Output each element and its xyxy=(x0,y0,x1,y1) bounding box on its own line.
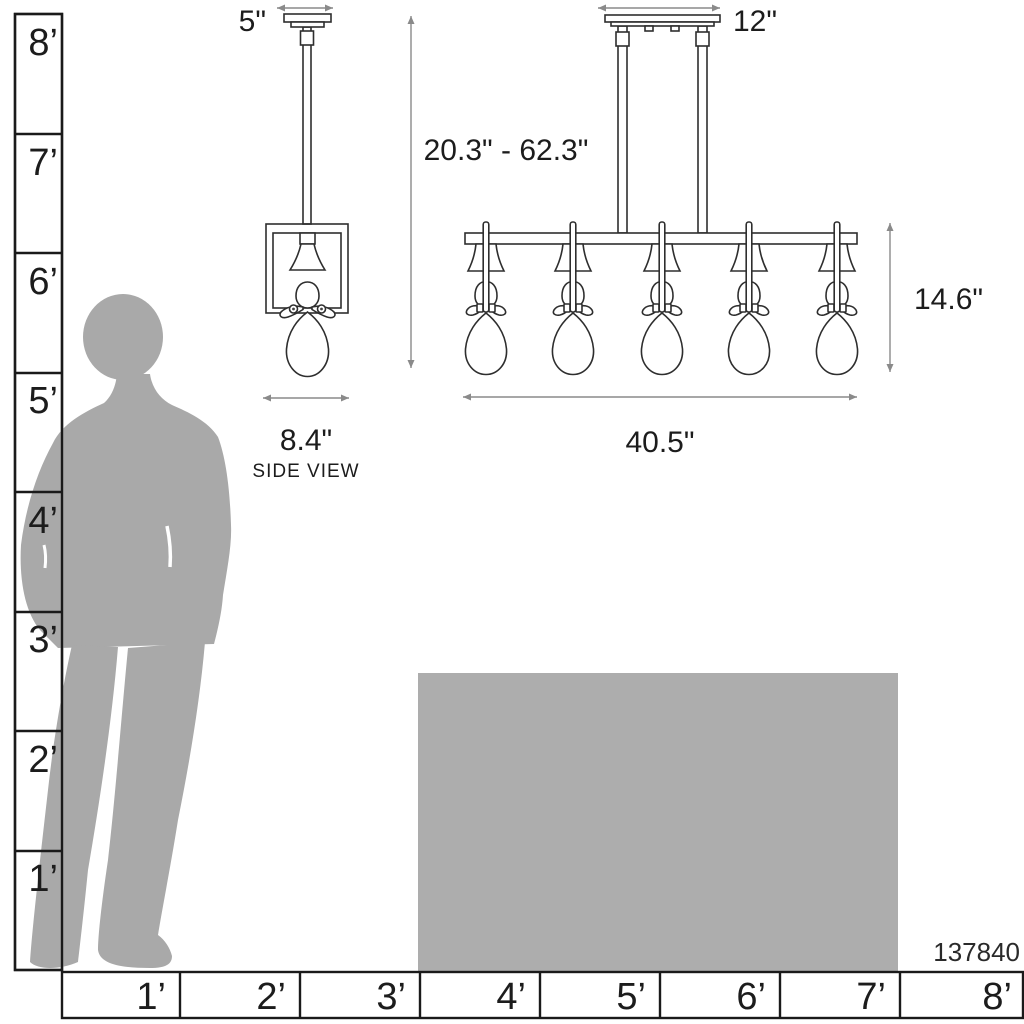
width-ruler-label: 4’ xyxy=(496,976,526,1018)
width-ruler-label: 8’ xyxy=(982,976,1012,1018)
silhouette-front-leg xyxy=(98,642,205,968)
height-ruler-label: 2’ xyxy=(28,739,58,781)
front-canopy-base xyxy=(611,22,714,26)
front-width-label: 40.5" xyxy=(625,426,694,459)
height-ruler-label: 7’ xyxy=(28,142,58,184)
island-table-block xyxy=(418,673,898,972)
width-ruler-label: 7’ xyxy=(856,976,886,1018)
pendant-light-5 xyxy=(816,222,857,375)
side-bell-shade xyxy=(290,244,325,270)
side-knob-right-dot xyxy=(320,308,323,311)
height-ruler-label: 6’ xyxy=(28,261,58,303)
width-ruler-label: 2’ xyxy=(256,976,286,1018)
side-knob-left-dot xyxy=(292,308,295,311)
side-canopy-base xyxy=(291,22,324,27)
pendant-light-1 xyxy=(465,222,506,375)
silhouette-pocket-left xyxy=(44,545,46,568)
front-downrod-right xyxy=(698,26,707,233)
product-code: 137840 xyxy=(933,937,1020,967)
width-ruler: 1’ 2’ 3’ 4’ 5’ 6’ 7’ 8’ xyxy=(62,972,1023,1018)
silhouette-head xyxy=(83,294,163,380)
side-downrod xyxy=(303,27,311,224)
front-view: 12" 20.3" - 62.3" 14.6" 40.5" xyxy=(411,5,983,459)
front-canopy-tab-left xyxy=(645,26,653,31)
pendant-light-3 xyxy=(641,222,682,375)
width-ruler-label: 3’ xyxy=(376,976,406,1018)
front-canopy xyxy=(605,15,720,22)
height-ruler-label: 3’ xyxy=(28,619,58,661)
height-ruler-label: 1’ xyxy=(28,858,58,900)
front-canopy-width-label: 12" xyxy=(733,5,777,38)
width-ruler-label: 5’ xyxy=(616,976,646,1018)
width-ruler-label: 6’ xyxy=(736,976,766,1018)
front-canopy-tab-right xyxy=(671,26,679,31)
front-rod-coupling-left xyxy=(616,32,629,46)
side-bulb xyxy=(296,282,319,308)
front-body-height-label: 14.6" xyxy=(914,283,983,316)
side-width-label: 8.4" xyxy=(280,424,332,457)
pendant-light-4 xyxy=(728,222,769,375)
height-ruler-label: 4’ xyxy=(28,500,58,542)
dimension-diagram-page: 8’ 7’ 6’ 5’ 4’ 3’ 2’ 1’ 1’ 2’ 3’ 4’ 5’ 6… xyxy=(0,0,1024,1024)
width-ruler-label: 1’ xyxy=(136,976,166,1018)
dimension-diagram: 8’ 7’ 6’ 5’ 4’ 3’ 2’ 1’ 1’ 2’ 3’ 4’ 5’ 6… xyxy=(0,0,1024,1024)
side-view: 5" 8.4" SIDE VIEW xyxy=(239,5,360,482)
front-downrod-left xyxy=(618,26,627,233)
height-ruler-label: 5’ xyxy=(28,380,58,422)
height-ruler-label: 8’ xyxy=(28,22,58,64)
pendant-light-2 xyxy=(552,222,593,375)
side-canopy xyxy=(284,14,331,22)
side-rod-coupling xyxy=(301,31,314,45)
side-canopy-width-label: 5" xyxy=(239,5,266,38)
side-glass-teardrop xyxy=(286,312,328,377)
side-socket xyxy=(300,233,315,244)
side-view-caption: SIDE VIEW xyxy=(252,461,359,482)
front-rod-coupling-right xyxy=(696,32,709,46)
front-height-range-label: 20.3" - 62.3" xyxy=(424,134,589,167)
